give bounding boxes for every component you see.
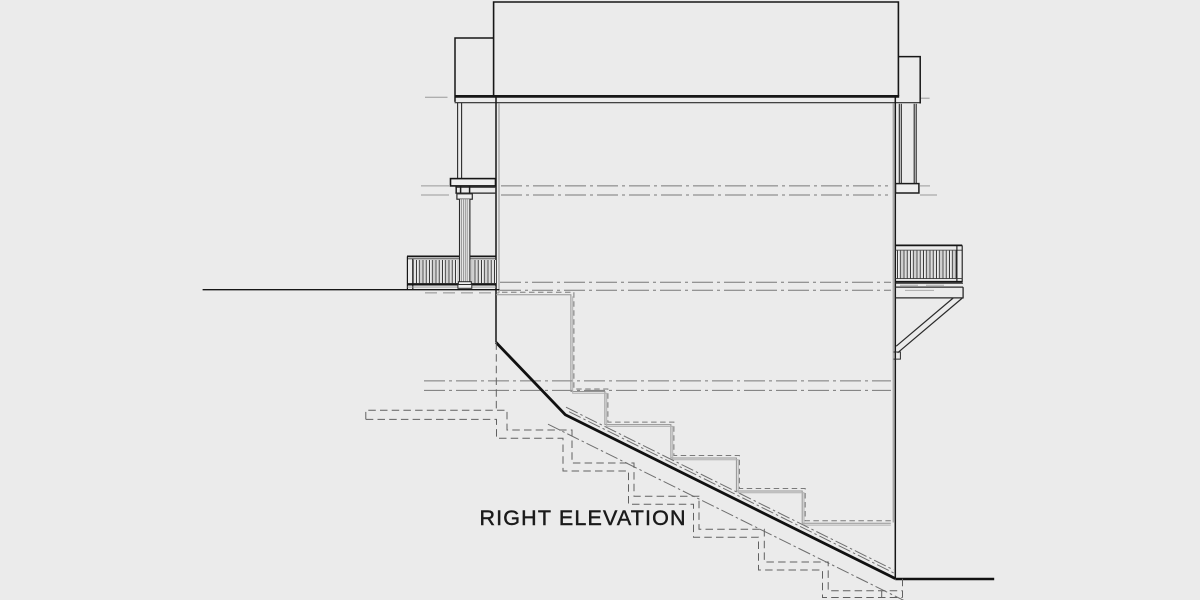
svg-text:RIGHT ELEVATION: RIGHT ELEVATION <box>480 506 687 530</box>
